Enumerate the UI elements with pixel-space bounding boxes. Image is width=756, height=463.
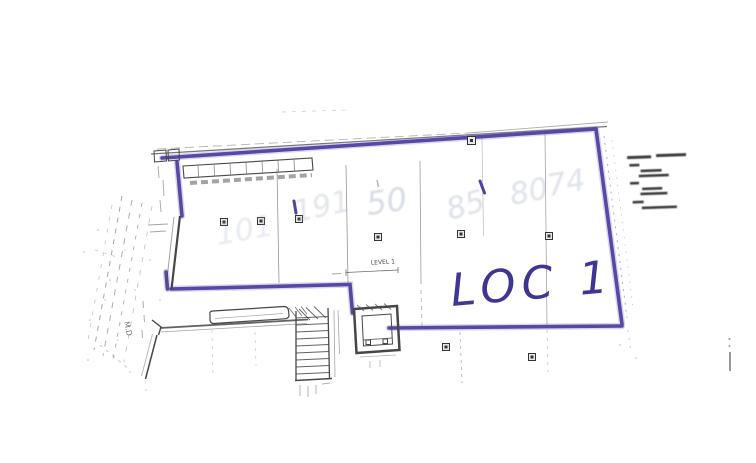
outline-bottom-wall — [389, 326, 622, 328]
floor-plan-drawing: LEVEL 1 101 — [0, 0, 756, 463]
property-line-dashes — [88, 196, 152, 370]
column — [375, 234, 382, 241]
md-side-label: M.D — [122, 321, 134, 337]
scanned-floor-plan-page: LEVEL 1 101 — [0, 0, 756, 463]
bay-number: 50 — [364, 180, 410, 223]
scan-speckles — [83, 229, 636, 390]
corridor-hatch — [289, 307, 307, 318]
outline-top-wall — [162, 129, 596, 158]
level-dimension: LEVEL 1 — [332, 258, 398, 276]
level-label: LEVEL 1 — [371, 258, 396, 266]
column — [443, 344, 450, 351]
corridor-ramp-detail — [142, 301, 309, 379]
bay-number: 191 — [290, 184, 353, 230]
column — [529, 354, 536, 361]
bay-number: 80 — [507, 171, 551, 213]
column — [468, 137, 476, 145]
bay-number: 101 — [213, 208, 275, 252]
outline-left-upper-wall — [177, 162, 182, 216]
column — [458, 231, 465, 238]
bottom-right-mark — [729, 338, 731, 371]
legend-notes-block — [627, 153, 688, 210]
bay-number: 74 — [544, 163, 588, 204]
elevator-shaft — [338, 304, 400, 369]
column — [546, 233, 553, 240]
loc-1-label: LOC 1 — [448, 250, 615, 317]
